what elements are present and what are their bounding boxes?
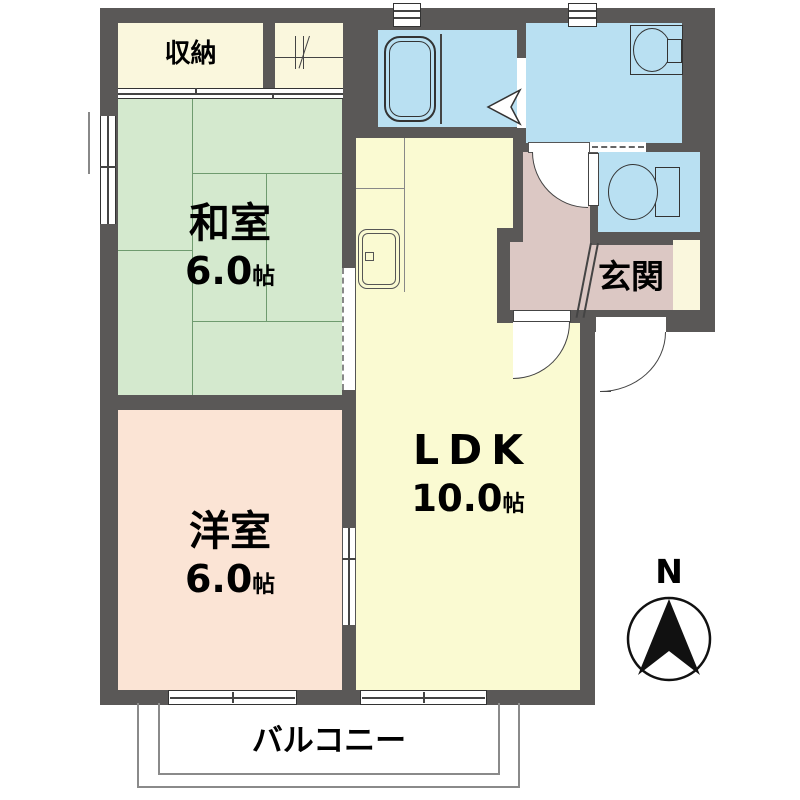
size-value: 6.0 [185, 557, 252, 601]
closet-sliding-door-tick [195, 88, 197, 94]
japanese-room-label: 和室 [118, 203, 342, 244]
balcony-sliding-door-tick [423, 692, 425, 703]
size-value: 6.0 [185, 249, 252, 293]
tatami-line [192, 173, 342, 174]
folding-door-icon [484, 88, 522, 126]
western-room-sliding-door-line [348, 528, 350, 625]
window-center-line [107, 116, 109, 224]
window [568, 3, 597, 27]
bathtub-icon-inner [389, 41, 431, 117]
western-room-sliding-door-tick [342, 558, 356, 560]
entrance-door-swing-arc [600, 332, 666, 392]
japanese-room-sliding-door [342, 268, 356, 390]
japanese-room-size: 6.0帖 [118, 252, 342, 290]
closet-sliding-door-line [118, 93, 343, 95]
window-line [394, 17, 420, 19]
kitchen-counter-line [404, 138, 405, 292]
kitchen-faucet-icon [365, 252, 374, 261]
western-room-label: 洋室 [118, 511, 342, 552]
washbasin-bowl-icon [633, 28, 671, 72]
window-line [394, 10, 420, 12]
compass-icon [625, 595, 713, 683]
balcony-label: バルコニー [158, 726, 500, 757]
tatami-line [118, 250, 192, 251]
window [393, 3, 421, 27]
ldk-size: 10.0帖 [356, 480, 580, 517]
tatami-line [192, 99, 193, 395]
ldk-room [356, 138, 513, 228]
size-unit: 帖 [252, 264, 275, 290]
closet-shelf-line [275, 57, 343, 58]
toilet-icon [608, 164, 658, 220]
compass-north-label: N [625, 555, 713, 588]
balcony-sliding-door-tick [232, 692, 234, 703]
window-sill-line [88, 112, 90, 174]
entrance-label: 玄関 [586, 260, 676, 293]
hall-door-leaf [513, 310, 571, 322]
floor-plan: 収納 和室 6.0帖 洋室 6.0帖 LDK 10.0帖 玄関 バルコニー N [0, 0, 800, 800]
shoe-cabinet [673, 240, 700, 310]
toilet-door-leaf [588, 153, 599, 206]
japanese-room [118, 99, 342, 395]
ldk-label: LDK [356, 430, 580, 471]
window-tick [100, 166, 116, 168]
cased-opening-dashed-line [592, 146, 644, 148]
closet-pole-mark [295, 36, 296, 69]
size-unit: 帖 [252, 572, 275, 598]
closet-room-2 [275, 23, 343, 88]
closet-label: 収納 [118, 41, 263, 67]
entrance-door-opening [596, 317, 666, 332]
kitchen-counter-line [356, 188, 404, 189]
size-unit: 帖 [503, 491, 525, 517]
bath-partition-line [440, 34, 442, 124]
size-value: 10.0 [411, 477, 502, 520]
tatami-line [192, 321, 342, 322]
window-line [569, 17, 596, 19]
tatami-line [266, 173, 267, 321]
washbasin-counter-icon [667, 39, 682, 63]
toilet-tank-icon [655, 167, 680, 217]
closet-sliding-door-tick [272, 93, 274, 99]
western-room-size: 6.0帖 [118, 560, 342, 598]
window-line [569, 10, 596, 12]
